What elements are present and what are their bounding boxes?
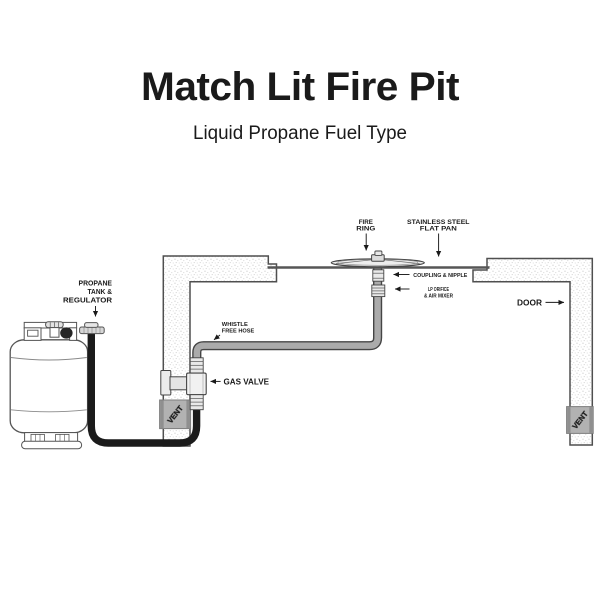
callout-gas-valve: GAS VALVE (211, 377, 270, 386)
callout-coupling-nipple: COUPLING & NIPPLE (394, 273, 468, 279)
fire-ring (331, 251, 424, 267)
propane-tank-label-line3: REGULATOR (63, 296, 113, 305)
vent-right-edge (567, 407, 570, 433)
callout-propane-tank: PROPANE TANK & REGULATOR (63, 278, 113, 316)
vent-left-edge2 (186, 401, 190, 429)
callout-door: DOOR (517, 298, 564, 308)
coupling-nipple-label: COUPLING & NIPPLE (413, 273, 467, 279)
gas-valve-label: GAS VALVE (224, 377, 270, 386)
callout-whistle-free-hose: WHISTLE FREE HOSE (214, 322, 255, 340)
callout-fire-ring: FIRE RING (356, 219, 375, 251)
vent-right: VENT (567, 407, 594, 434)
flat-pan-label-line2: FLAT PAN (420, 225, 458, 232)
coupling-nipple-fitting (373, 270, 384, 281)
page-title: Match Lit Fire Pit (141, 65, 459, 109)
regulator-cap (85, 323, 98, 328)
whistle-hose-label-line1: WHISTLE (222, 322, 248, 328)
vent-left: VENT (160, 400, 191, 429)
lp-orifice-label-line2: & AIR MIXER (424, 294, 453, 300)
vent-right-edge2 (589, 407, 592, 433)
tank-base-plate (22, 441, 82, 449)
gas-valve-mount-bar (170, 377, 188, 390)
propane-tank (10, 322, 87, 449)
page-subtitle: Liquid Propane Fuel Type (193, 123, 407, 144)
fire-pit-diagram-page: Match Lit Fire Pit Liquid Propane Fuel T… (0, 0, 600, 600)
lp-orifice-air-mixer-fitting (372, 285, 385, 297)
propane-tank-label-line2: TANK & (88, 287, 113, 296)
callout-lp-orifice: LP ORIFICE & AIR MIXER (395, 287, 453, 300)
whistle-hose-arrow (214, 335, 220, 340)
regulator-bulb (60, 327, 72, 338)
propane-tank-label-line1: PROPANE (79, 278, 113, 287)
regulator (80, 323, 105, 334)
whistle-hose-label-line2: FREE HOSE (222, 329, 255, 335)
vent-left-edge (160, 401, 164, 429)
fire-pit-diagram: Match Lit Fire Pit Liquid Propane Fuel T… (0, 0, 600, 600)
tank-body (10, 340, 87, 433)
door-label: DOOR (517, 298, 542, 308)
tank-valve-stem (50, 328, 59, 338)
tank-collar-handle-slot (28, 330, 38, 336)
callout-flat-pan: STAINLESS STEEL FLAT PAN (407, 219, 470, 257)
fire-ring-label-line2: RING (356, 225, 375, 232)
lp-orifice-label-line1: LP ORIFICE (428, 287, 449, 293)
coupling-body (373, 270, 384, 281)
gas-valve-mount-plate (161, 371, 171, 396)
fire-ring-hub-cap (375, 251, 382, 255)
